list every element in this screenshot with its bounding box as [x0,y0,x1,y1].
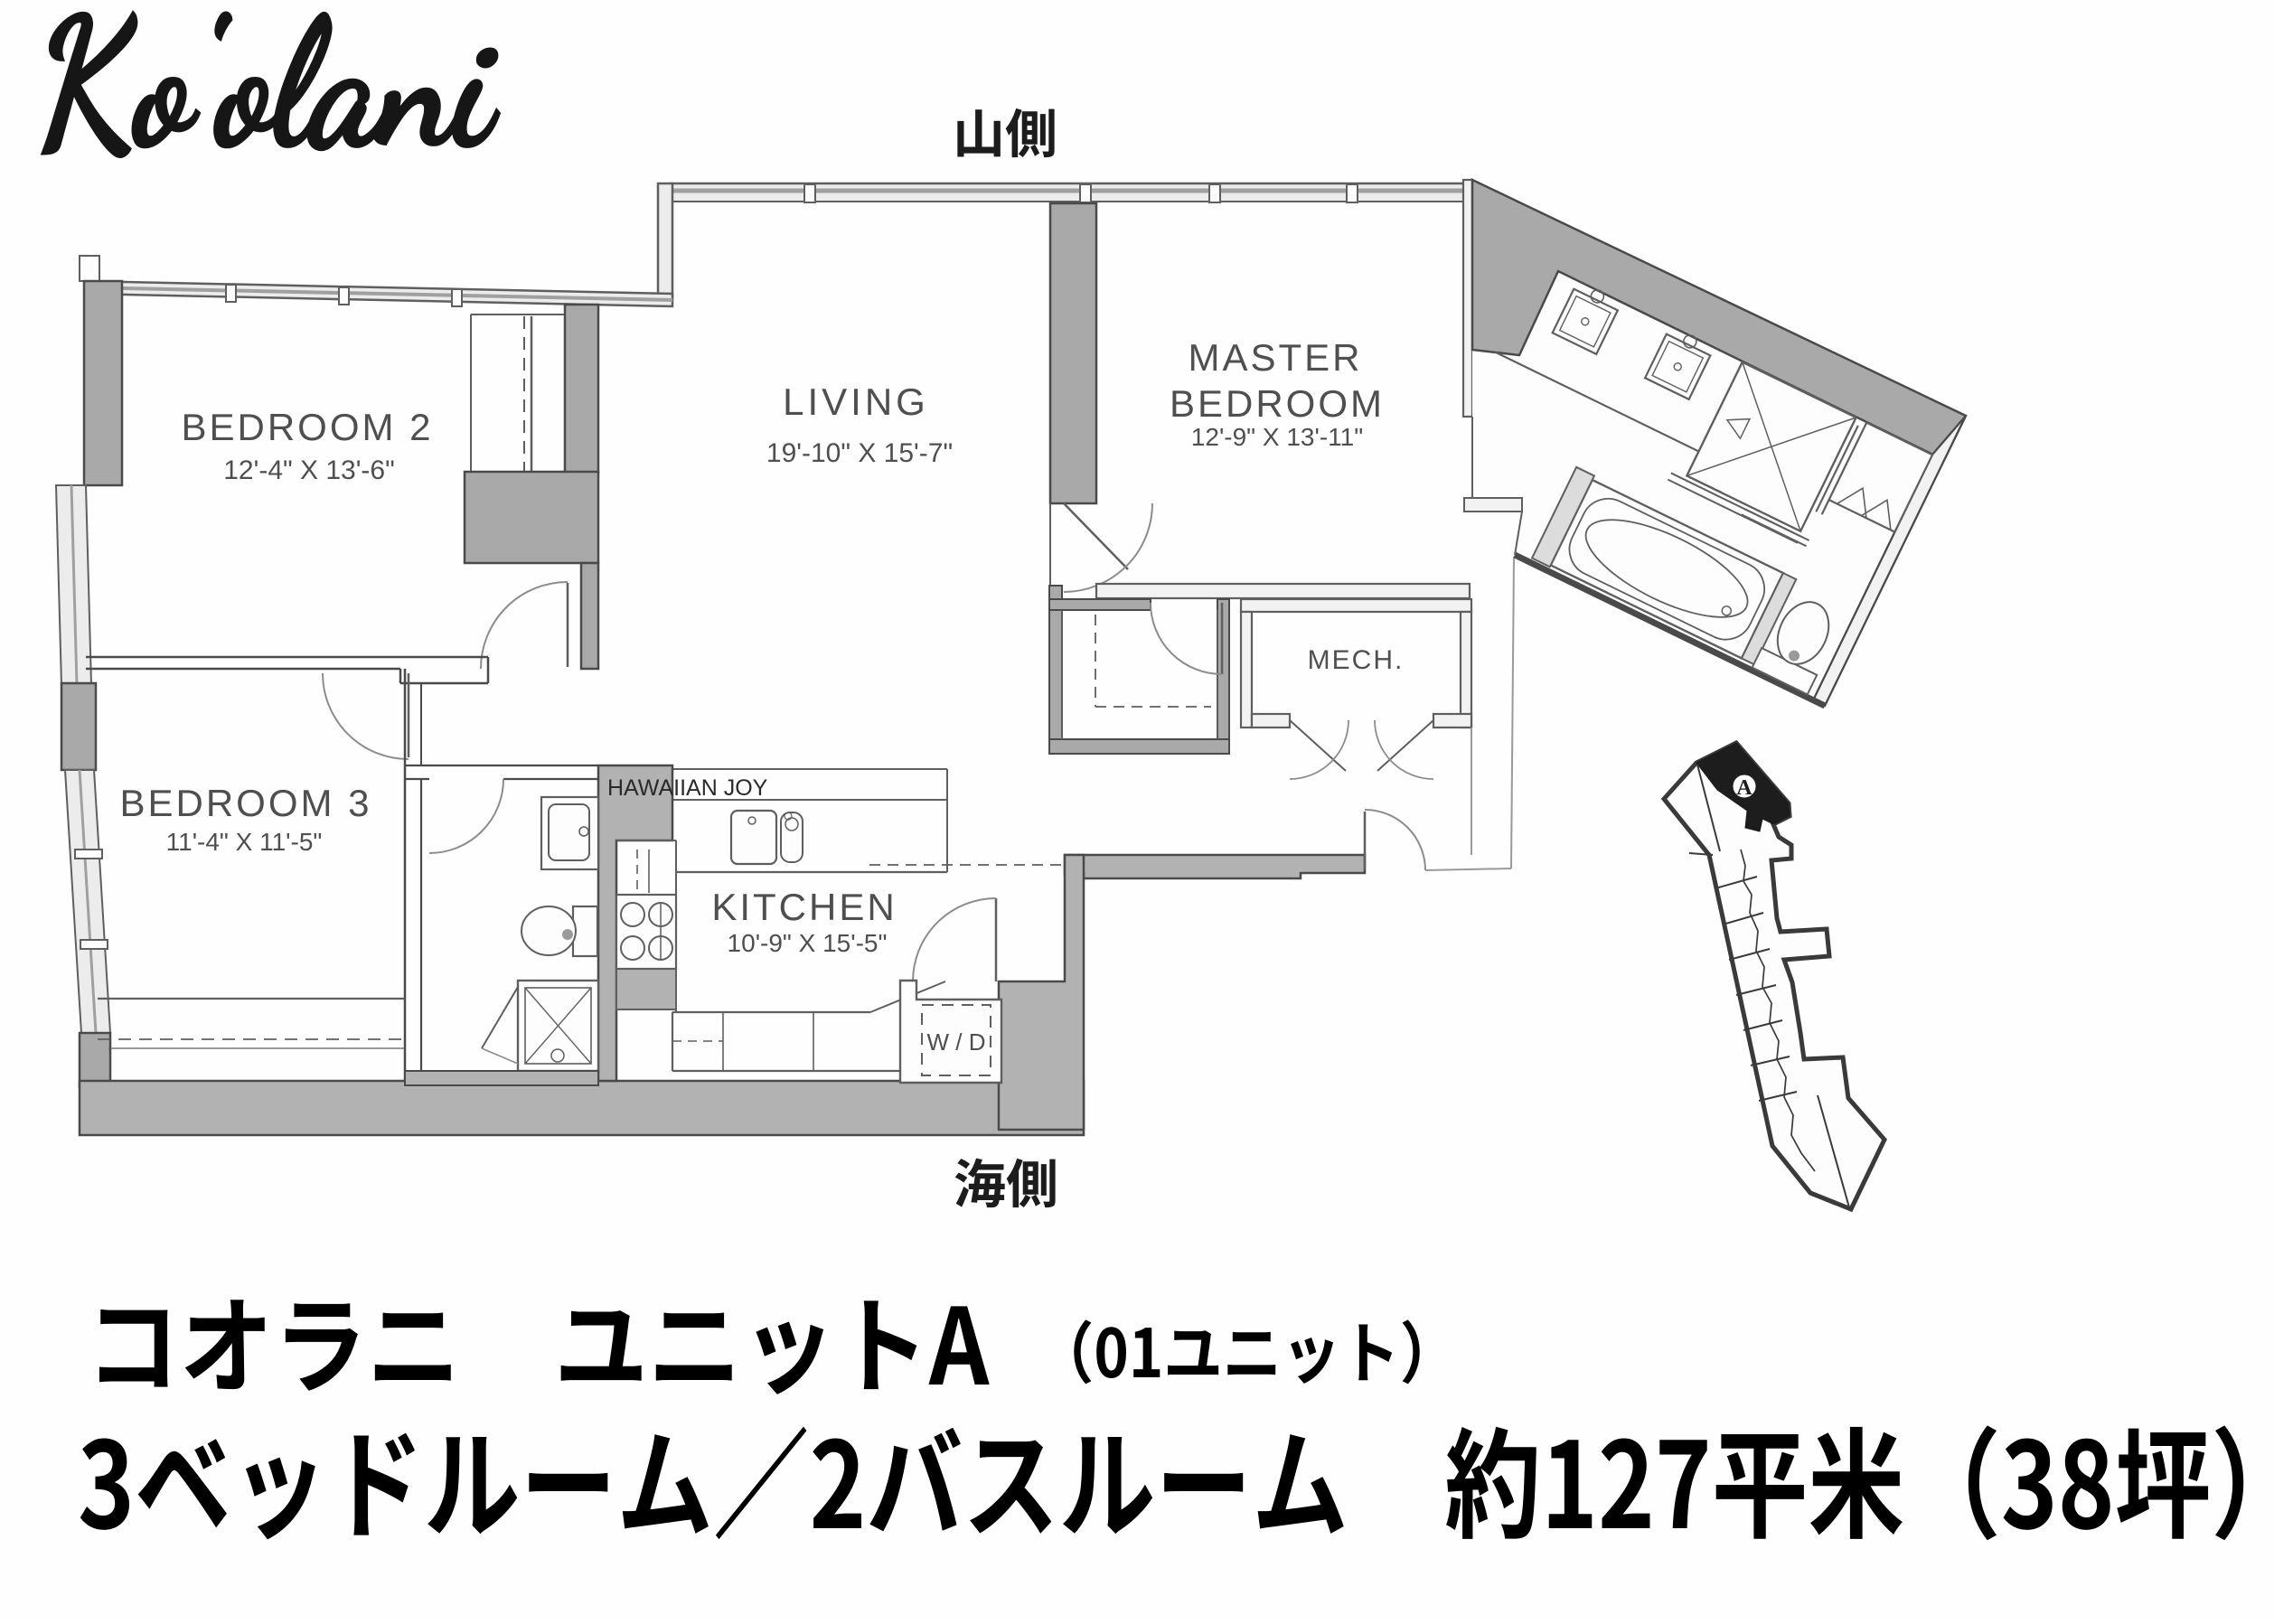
svg-text:W / D: W / D [927,1028,986,1056]
svg-text:12'-4" X 13'-6": 12'-4" X 13'-6" [223,455,395,485]
svg-text:MECH.: MECH. [1308,645,1405,675]
svg-text:MASTER: MASTER [1188,336,1362,379]
svg-text:BEDROOM 3: BEDROOM 3 [119,782,371,824]
svg-text:11'-4" X 11'-5": 11'-4" X 11'-5" [166,828,323,856]
svg-text:LIVING: LIVING [783,380,929,423]
svg-text:BEDROOM: BEDROOM [1170,382,1385,425]
svg-text:KITCHEN: KITCHEN [711,886,897,928]
svg-text:10'-9" X 15'-5": 10'-9" X 15'-5" [728,929,888,957]
svg-text:12'-9" X 13'-11": 12'-9" X 13'-11" [1191,423,1363,451]
svg-text:BEDROOM 2: BEDROOM 2 [181,406,433,448]
svg-text:19'-10" X 15'-7": 19'-10" X 15'-7" [766,438,953,468]
svg-text:HAWAIIAN JOY: HAWAIIAN JOY [607,775,768,801]
